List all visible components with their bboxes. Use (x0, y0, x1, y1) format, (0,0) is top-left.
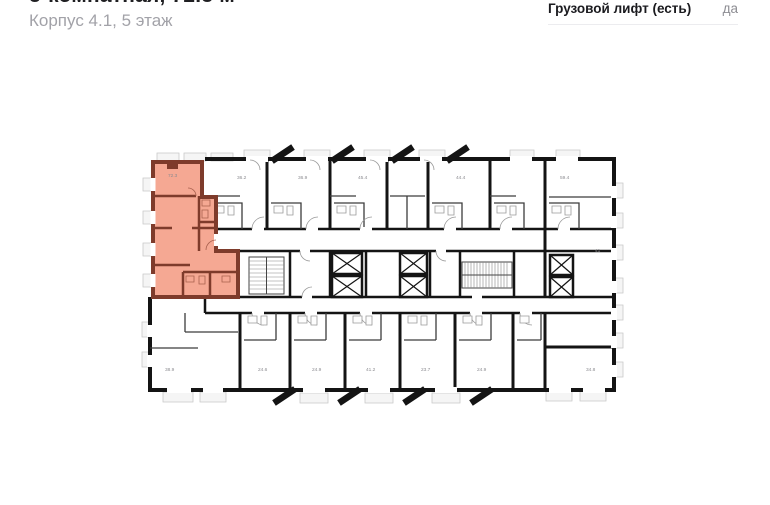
unit-area-label: 44.4 (456, 175, 466, 181)
unit-area-label: 24.6 (258, 367, 268, 373)
unit-area-label: 24.9 (312, 367, 322, 373)
unit-area-label: 45.4 (358, 175, 368, 181)
unit-area-label: 38.9 (165, 367, 175, 373)
unit-area-label: 23.7 (421, 367, 431, 373)
unit-area-label: 59.4 (560, 175, 570, 181)
elevator-shafts (332, 253, 573, 297)
door-arcs (250, 160, 570, 325)
unit-area-label: 36.9 (298, 175, 308, 181)
staircase-right (462, 262, 512, 288)
staircase-left (249, 257, 284, 294)
unit-area-label: 41.2 (366, 367, 376, 373)
floor-plan[interactable]: 72.336.236.945.444.459.44138.924.624.941… (0, 0, 770, 500)
unit-area-label: 72.3 (168, 173, 178, 179)
unit-area-label: 34.8 (586, 367, 596, 373)
highlighted-unit-notch (167, 161, 178, 169)
unit-area-label: 36.2 (237, 175, 247, 181)
unit-area-label: 24.9 (477, 367, 487, 373)
unit-area-label: 41 (595, 248, 601, 254)
